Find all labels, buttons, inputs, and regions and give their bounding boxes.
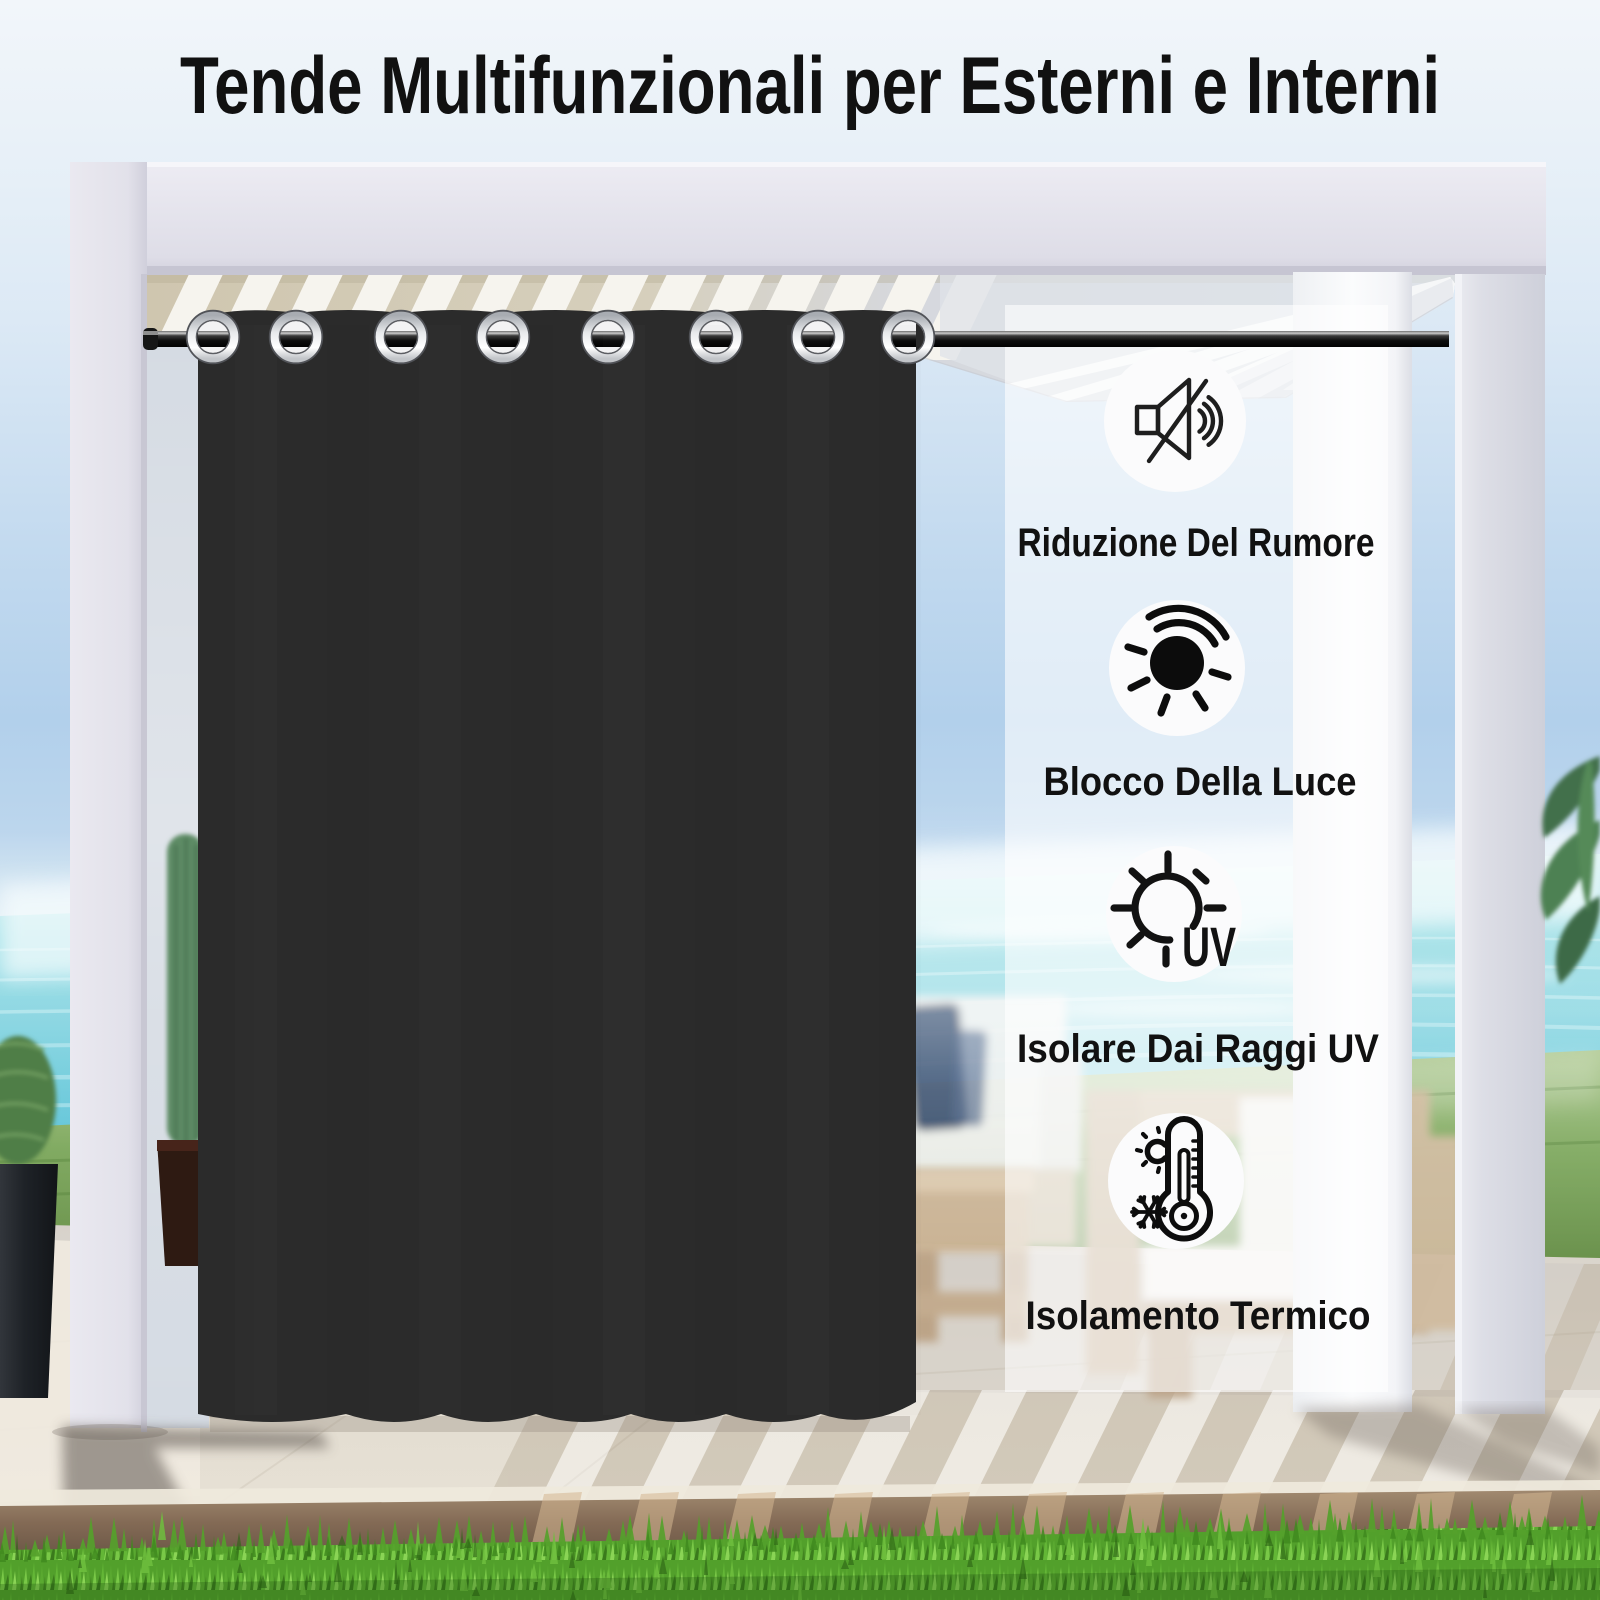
- svg-text:Riduzione Del Rumore: Riduzione Del Rumore: [1018, 521, 1375, 565]
- svg-text:UV: UV: [1182, 915, 1236, 978]
- svg-text:Tende Multifunzionali per Este: Tende Multifunzionali per Esterni e Inte…: [180, 41, 1440, 131]
- svg-text:Isolamento Termico: Isolamento Termico: [1026, 1294, 1371, 1338]
- svg-text:Isolare Dai Raggi UV: Isolare Dai Raggi UV: [1017, 1027, 1379, 1071]
- svg-text:Blocco Della Luce: Blocco Della Luce: [1044, 760, 1357, 804]
